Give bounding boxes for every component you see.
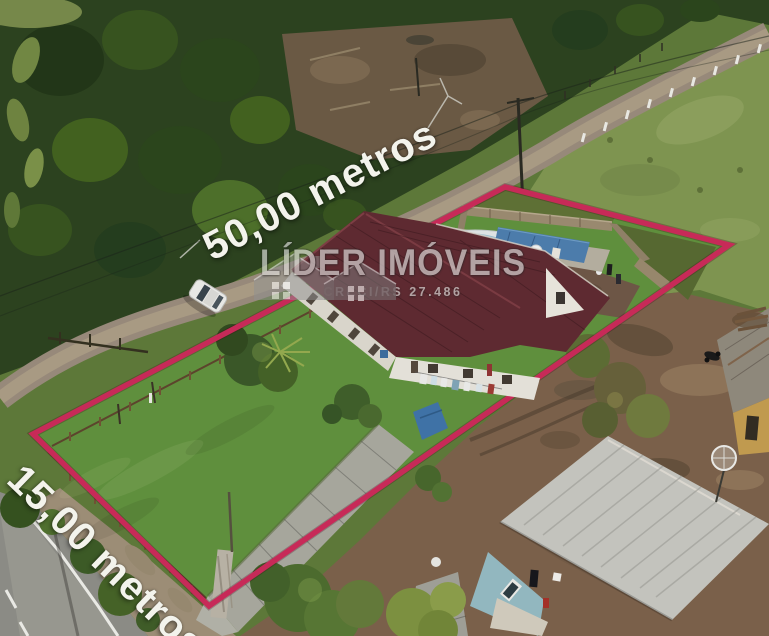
white-marker-post [149, 393, 152, 403]
agency-watermark: LÍDER IMÓVEIS CRECI/RS 27.486 [248, 246, 538, 298]
round-table [431, 557, 441, 567]
aerial-photo: 50,00 metros 15,00 metros LÍDER IMÓVEIS … [0, 0, 769, 636]
agency-name: LÍDER IMÓVEIS [248, 244, 538, 283]
plastic-chair [552, 572, 561, 581]
